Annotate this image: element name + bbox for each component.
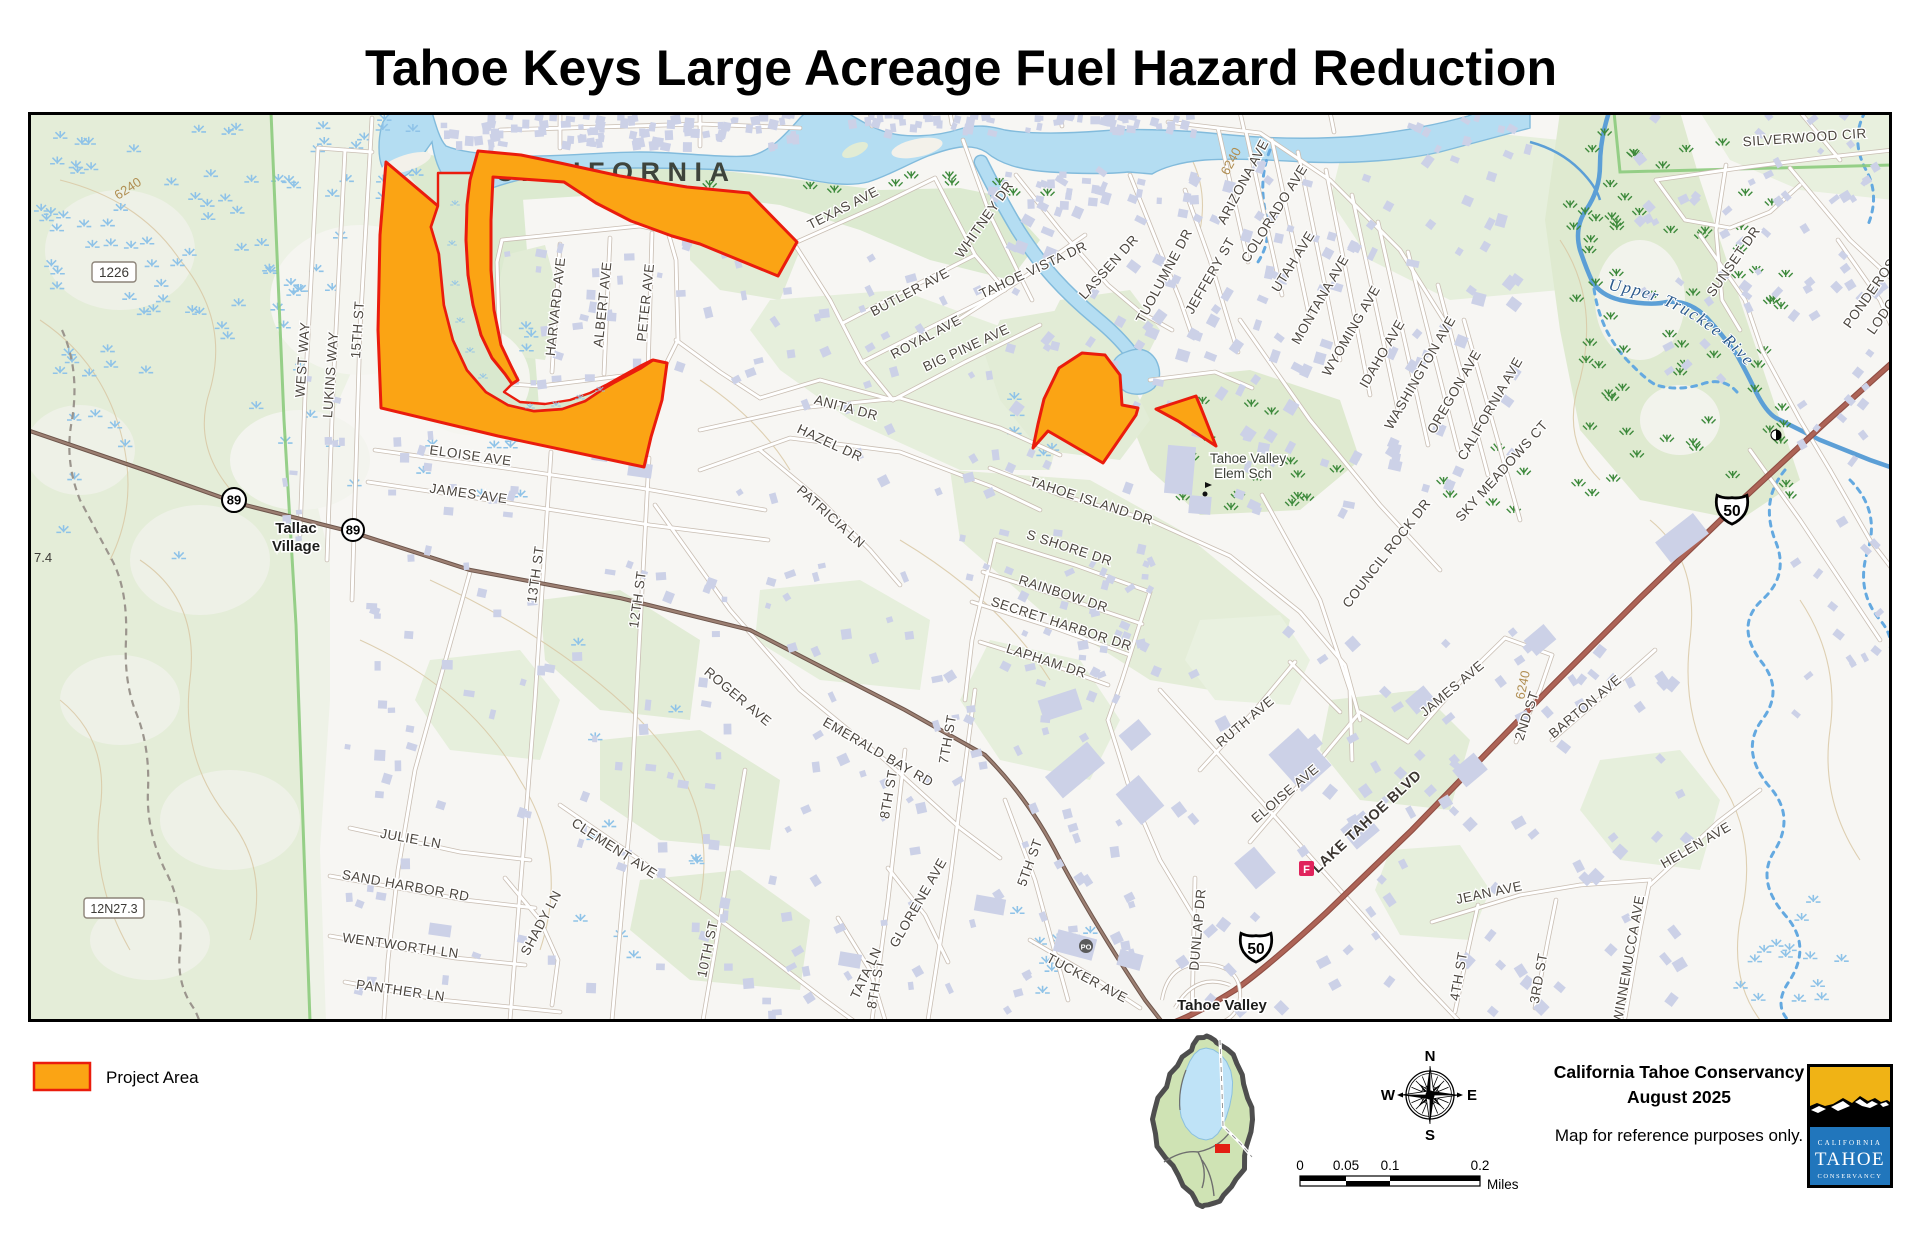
svg-text:Miles: Miles bbox=[1487, 1177, 1519, 1192]
svg-text:CALIFORNIA: CALIFORNIA bbox=[1818, 1139, 1882, 1147]
svg-text:Tahoe Valley: Tahoe Valley bbox=[1177, 997, 1267, 1014]
svg-text:1226: 1226 bbox=[99, 265, 129, 280]
svg-text:12N27.3: 12N27.3 bbox=[90, 902, 137, 916]
svg-text:N: N bbox=[1425, 1048, 1436, 1065]
svg-text:California Tahoe Conservancy: California Tahoe Conservancy bbox=[1554, 1062, 1805, 1082]
svg-text:PO: PO bbox=[1081, 943, 1092, 952]
svg-text:E: E bbox=[1467, 1087, 1477, 1104]
svg-text:Tallac: Tallac bbox=[275, 520, 316, 537]
svg-text:89: 89 bbox=[346, 523, 360, 538]
svg-text:TAHOE: TAHOE bbox=[1815, 1149, 1885, 1170]
svg-text:Project Area: Project Area bbox=[106, 1068, 199, 1087]
svg-text:CONSERVANCY: CONSERVANCY bbox=[1818, 1173, 1883, 1180]
svg-text:0: 0 bbox=[1296, 1158, 1304, 1173]
svg-text:Tahoe Valley: Tahoe Valley bbox=[1210, 451, 1287, 466]
svg-text:89: 89 bbox=[227, 493, 241, 508]
svg-text:0.1: 0.1 bbox=[1381, 1158, 1400, 1173]
svg-text:Village: Village bbox=[272, 538, 320, 555]
svg-text:7.4: 7.4 bbox=[34, 550, 52, 565]
svg-text:50: 50 bbox=[1723, 503, 1740, 520]
svg-text:0.2: 0.2 bbox=[1471, 1158, 1490, 1173]
svg-text:S: S bbox=[1425, 1127, 1435, 1144]
svg-text:Elem Sch: Elem Sch bbox=[1214, 466, 1272, 481]
svg-text:Map for reference purposes onl: Map for reference purposes only. bbox=[1555, 1126, 1803, 1145]
svg-text:August 2025: August 2025 bbox=[1627, 1087, 1731, 1107]
svg-text:F: F bbox=[1303, 864, 1310, 876]
svg-text:0.05: 0.05 bbox=[1333, 1158, 1359, 1173]
svg-text:50: 50 bbox=[1247, 941, 1264, 958]
svg-text:Tahoe Keys Large Acreage Fuel: Tahoe Keys Large Acreage Fuel Hazard Red… bbox=[365, 40, 1557, 96]
svg-text:W: W bbox=[1381, 1087, 1396, 1104]
